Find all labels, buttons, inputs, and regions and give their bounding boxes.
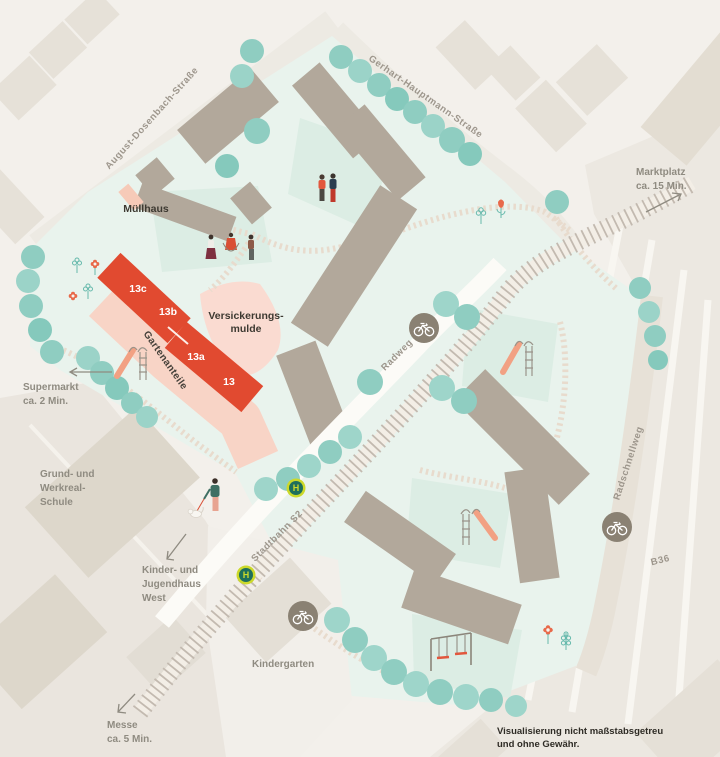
building-label-13a: 13a xyxy=(187,351,205,363)
tram-stop-h-icon: H xyxy=(287,479,306,498)
kindergarten-label: Kindergarten xyxy=(252,659,314,670)
building-label-13c: 13c xyxy=(129,283,147,295)
svg-text:ca. 5 Min.: ca. 5 Min. xyxy=(107,734,152,745)
svg-text:H: H xyxy=(293,483,300,493)
svg-text:Marktplatz: Marktplatz xyxy=(636,167,685,178)
svg-text:Schule: Schule xyxy=(40,497,73,508)
svg-text:ca. 15 Min.: ca. 15 Min. xyxy=(636,181,687,192)
muellhaus-label: Müllhaus xyxy=(123,203,169,215)
bicycle-icon xyxy=(602,512,632,542)
site-plan-page: H H xyxy=(0,0,720,757)
versickerungsmulde-label-2: mulde xyxy=(231,323,262,335)
svg-text:H: H xyxy=(243,570,250,580)
svg-text:Werkreal-: Werkreal- xyxy=(40,483,85,494)
tram-stop-h-icon: H xyxy=(237,566,256,585)
svg-text:Messe: Messe xyxy=(107,720,138,731)
svg-text:ca. 2 Min.: ca. 2 Min. xyxy=(23,396,68,407)
svg-text:Visualisierung nicht maßstabsg: Visualisierung nicht maßstabsgetreu xyxy=(497,726,663,737)
svg-text:Supermarkt: Supermarkt xyxy=(23,382,79,393)
svg-text:West: West xyxy=(142,593,166,604)
bicycle-icon xyxy=(288,601,318,631)
building-label-13: 13 xyxy=(223,376,235,388)
bicycle-icon xyxy=(409,313,439,343)
versickerungsmulde-label-1: Versickerungs- xyxy=(208,310,284,322)
building-label-13b: 13b xyxy=(159,306,177,318)
svg-text:Jugendhaus: Jugendhaus xyxy=(142,579,201,590)
svg-text:Grund- und: Grund- und xyxy=(40,469,94,480)
site-plan-map: H H xyxy=(0,0,720,757)
svg-text:Kinder- und: Kinder- und xyxy=(142,565,198,576)
svg-text:und ohne Gewähr.: und ohne Gewähr. xyxy=(497,739,579,750)
